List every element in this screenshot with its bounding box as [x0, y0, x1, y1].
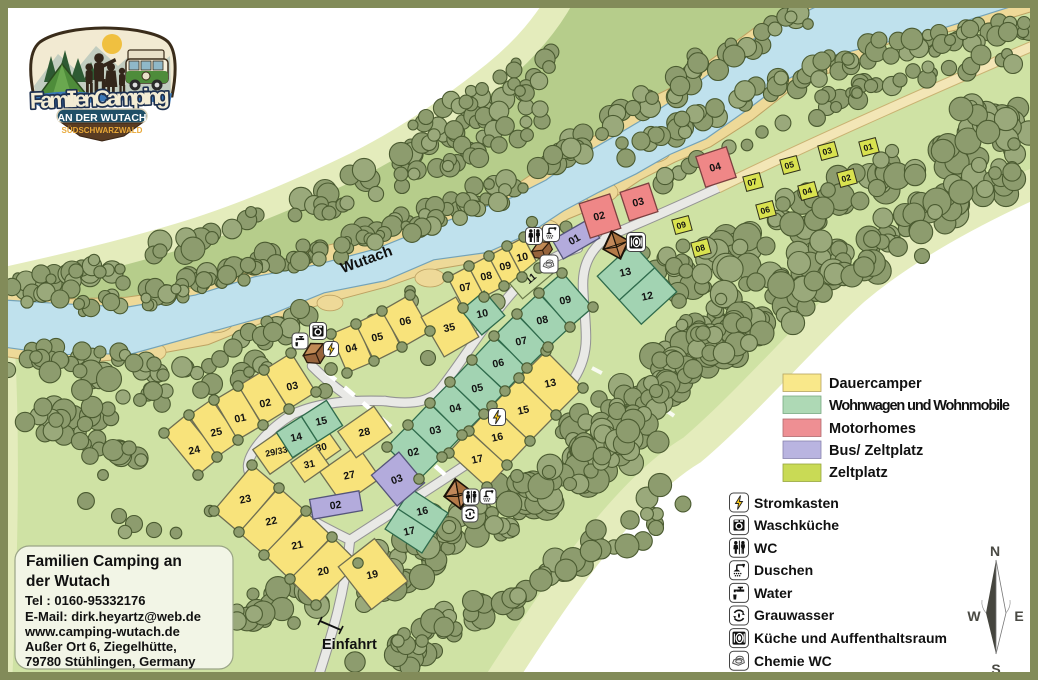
svg-text:www.camping-wutach.de: www.camping-wutach.de	[24, 624, 180, 639]
svg-text:Küche und Auffenthaltsraum: Küche und Auffenthaltsraum	[754, 630, 947, 646]
svg-text:W: W	[967, 608, 981, 624]
svg-text:Waschküche: Waschküche	[754, 517, 839, 533]
svg-text:Wohnwagen und Wohnmobile: Wohnwagen und Wohnmobile	[829, 398, 1010, 414]
svg-text:Chemie WC: Chemie WC	[754, 653, 832, 669]
svg-text:AN DER WUTACH: AN DER WUTACH	[57, 112, 146, 124]
svg-text:Außer Ort 6, Ziegelhütte,: Außer Ort 6, Ziegelhütte,	[25, 639, 177, 654]
svg-text:Zeltplatz: Zeltplatz	[829, 465, 888, 481]
svg-text:E-Mail: dirk.heyartz@web.de: E-Mail: dirk.heyartz@web.de	[25, 609, 201, 624]
svg-text:N: N	[990, 543, 1000, 559]
svg-text:der Wutach: der Wutach	[26, 573, 110, 590]
svg-text:Grauwasser: Grauwasser	[754, 607, 835, 623]
svg-text:Stromkasten: Stromkasten	[754, 495, 839, 511]
svg-text:Duschen: Duschen	[754, 562, 813, 578]
svg-text:Dauercamper: Dauercamper	[829, 376, 922, 392]
svg-text:WC: WC	[754, 540, 777, 556]
svg-text:Familien Camping an: Familien Camping an	[26, 553, 182, 570]
svg-text:Einfahrt: Einfahrt	[322, 637, 377, 653]
svg-text:Water: Water	[754, 585, 793, 601]
svg-text:Motorhomes: Motorhomes	[829, 421, 916, 437]
svg-text:Bus/ Zeltplatz: Bus/ Zeltplatz	[829, 443, 923, 459]
svg-text:SÜDSCHWARZWALD: SÜDSCHWARZWALD	[62, 126, 143, 135]
svg-text:Tel : 0160-95332176: Tel : 0160-95332176	[25, 593, 145, 608]
svg-text:E: E	[1014, 608, 1023, 624]
svg-text:79780 Stühlingen, Germany: 79780 Stühlingen, Germany	[25, 654, 196, 669]
svg-text:02: 02	[329, 499, 342, 513]
